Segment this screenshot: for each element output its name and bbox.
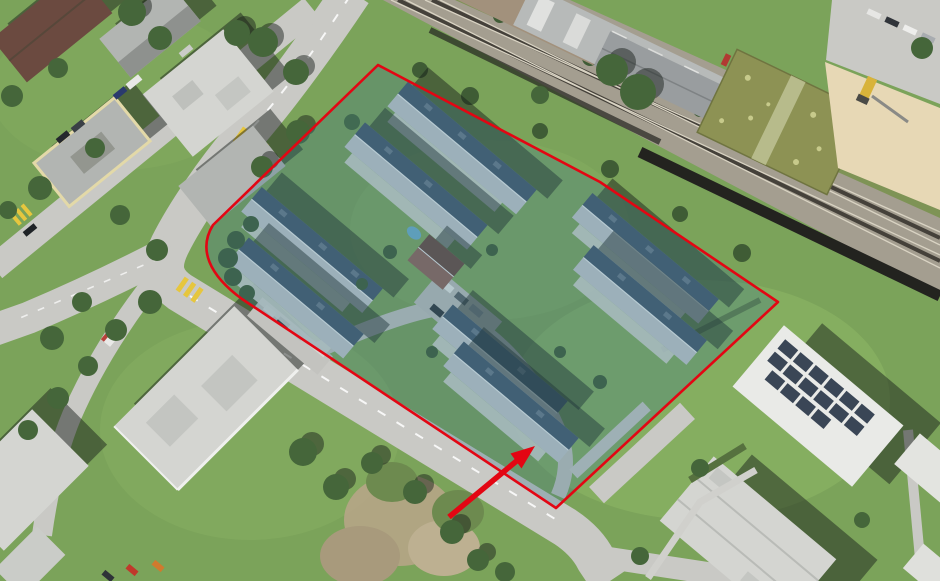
screenshot-stage [0, 0, 940, 581]
aerial-map-canvas[interactable] [0, 0, 940, 581]
